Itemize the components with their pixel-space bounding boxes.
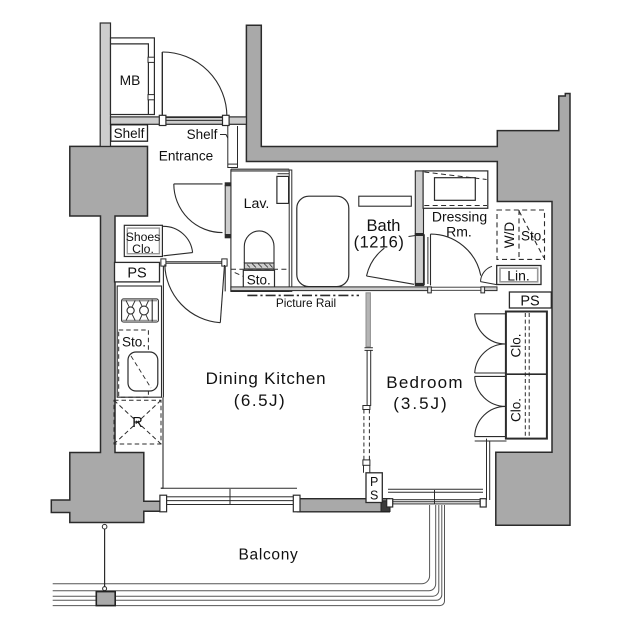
svg-text:Balcony: Balcony [238,547,298,564]
svg-text:Sto.: Sto. [122,335,146,350]
svg-text:Picture Rail: Picture Rail [276,296,336,310]
svg-text:Sto.: Sto. [247,273,271,288]
svg-text:(1216): (1216) [354,234,405,252]
svg-text:Clo.: Clo. [132,242,154,256]
svg-text:(6.5J): (6.5J) [234,391,286,410]
svg-text:Shelf: Shelf [114,126,145,141]
svg-text:Lin.: Lin. [507,268,530,284]
svg-text:PS: PS [127,266,146,282]
svg-text:Rm.: Rm. [446,224,472,240]
svg-text:Bedroom: Bedroom [386,373,463,392]
svg-text:(3.5J): (3.5J) [393,394,448,413]
svg-text:Dining Kitchen: Dining Kitchen [206,369,327,388]
svg-text:P: P [370,475,378,489]
svg-text:MB: MB [120,73,141,88]
svg-text:Dressing: Dressing [432,209,487,225]
svg-text:R: R [132,415,142,431]
svg-text:Clo.: Clo. [509,333,524,357]
svg-text:Lav.: Lav. [244,196,270,212]
svg-text:W/D: W/D [502,222,517,248]
svg-text:Clo.: Clo. [509,398,524,422]
svg-text:S: S [370,489,378,503]
svg-text:PS: PS [520,294,539,310]
svg-text:Sto.: Sto. [521,229,545,244]
svg-text:Entrance: Entrance [159,149,213,164]
svg-text:Shelf: Shelf [187,127,218,142]
svg-text:Bath: Bath [367,217,401,235]
